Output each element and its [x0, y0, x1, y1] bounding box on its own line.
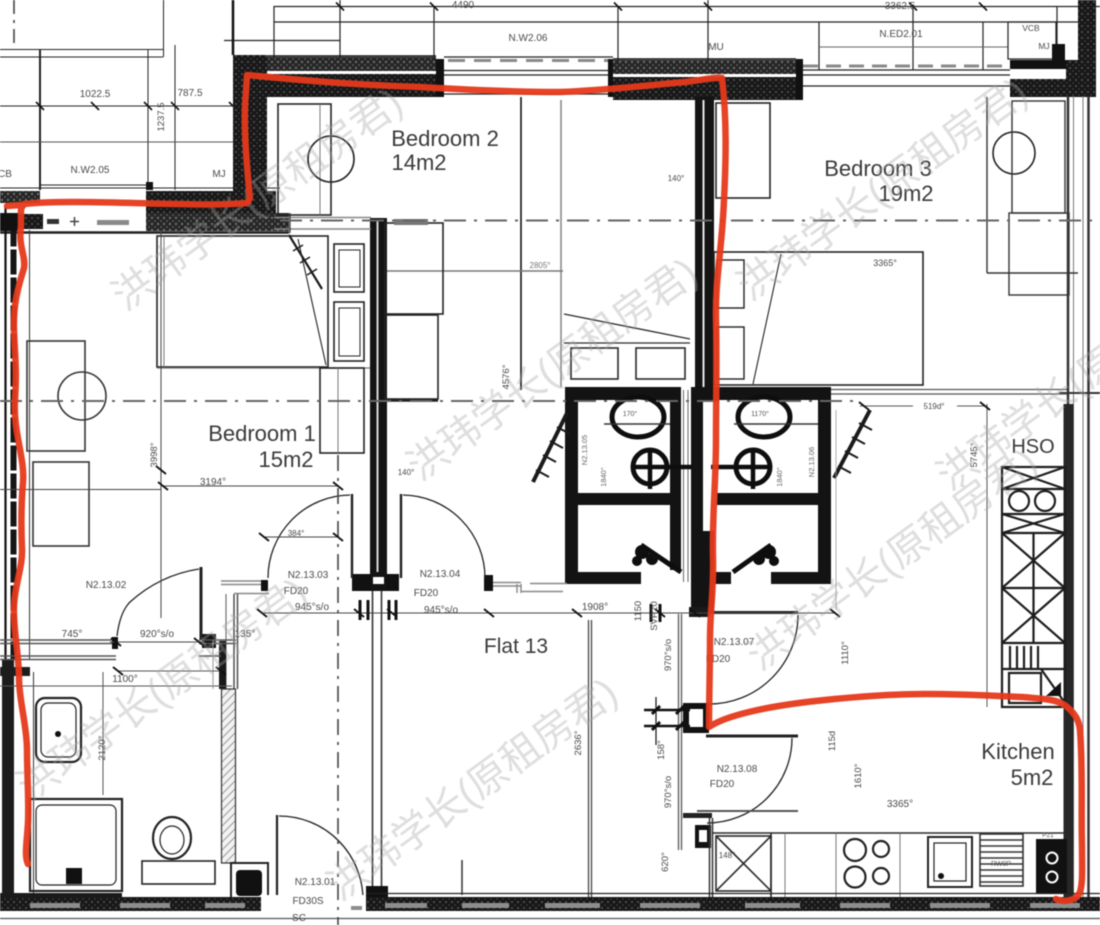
svg-text:N2.13.05: N2.13.05	[580, 435, 589, 465]
svg-text:N2.13.08: N2.13.08	[717, 764, 758, 775]
svg-text:N2.13.04: N2.13.04	[420, 569, 461, 580]
svg-text:970°s/o: 970°s/o	[663, 639, 674, 671]
svg-text:787.5: 787.5	[177, 88, 202, 99]
svg-text:970°s/o: 970°s/o	[663, 776, 674, 808]
svg-text:MU: MU	[708, 42, 724, 53]
svg-text:945°s/o: 945°s/o	[424, 605, 458, 616]
svg-text:3365°: 3365°	[887, 799, 913, 810]
svg-text:140°: 140°	[668, 174, 685, 183]
svg-text:3998°: 3998°	[149, 442, 160, 467]
svg-text:N.W2.06: N.W2.06	[509, 33, 548, 44]
svg-text:P21: P21	[1042, 832, 1054, 839]
svg-text:620°: 620°	[660, 852, 671, 872]
svg-text:3365°: 3365°	[873, 258, 897, 268]
svg-text:158°: 158°	[656, 740, 667, 760]
svg-text:2805°: 2805°	[530, 261, 551, 270]
svg-text:1170°: 1170°	[751, 410, 769, 418]
svg-text:FD20: FD20	[710, 779, 735, 790]
svg-text:1840°: 1840°	[775, 467, 784, 487]
svg-text:384°: 384°	[288, 529, 305, 538]
svg-text:14m2: 14m2	[391, 150, 446, 175]
svg-text:519d°: 519d°	[924, 402, 945, 411]
svg-text:3194°: 3194°	[200, 477, 226, 488]
svg-text:N.W2.05: N.W2.05	[71, 165, 110, 176]
svg-text:170°: 170°	[623, 410, 638, 418]
svg-text:15m2: 15m2	[258, 447, 313, 472]
svg-text:148°: 148°	[719, 851, 736, 860]
svg-text:745°: 745°	[62, 629, 83, 640]
svg-text:1150: 1150	[633, 601, 644, 621]
svg-text:1110°: 1110°	[840, 641, 851, 665]
svg-text:FD30S: FD30S	[292, 896, 323, 907]
svg-text:3362.5: 3362.5	[885, 1, 916, 12]
svg-text:5m2: 5m2	[1011, 765, 1054, 790]
svg-text:N2.13.02: N2.13.02	[86, 580, 127, 591]
svg-text:N.ED2.01: N.ED2.01	[879, 29, 923, 40]
svg-text:115d: 115d	[827, 731, 838, 751]
svg-text:FD20: FD20	[414, 588, 439, 599]
svg-text:VCB: VCB	[1022, 23, 1040, 33]
svg-text:SVP20: SVP20	[649, 601, 660, 631]
svg-text:920°s/o: 920°s/o	[140, 629, 174, 640]
svg-text:1908°: 1908°	[582, 602, 608, 613]
svg-text:1022.5: 1022.5	[80, 89, 111, 100]
svg-text:MJ: MJ	[1038, 41, 1049, 51]
svg-text:MJ: MJ	[212, 169, 225, 180]
svg-text:Bedroom 1: Bedroom 1	[208, 421, 316, 446]
svg-text:4490: 4490	[452, 0, 475, 11]
svg-text:RW0P: RW0P	[991, 861, 1011, 868]
svg-text:N2.13.06: N2.13.06	[807, 447, 816, 477]
svg-text:1610°: 1610°	[853, 763, 864, 788]
svg-text:1840°: 1840°	[599, 467, 608, 487]
svg-text:Bedroom 2: Bedroom 2	[391, 126, 499, 151]
svg-text:Flat 13: Flat 13	[484, 635, 548, 658]
svg-text:1237.5: 1237.5	[156, 102, 167, 131]
svg-text:SC: SC	[292, 913, 306, 924]
svg-text:Kitchen: Kitchen	[981, 739, 1054, 764]
svg-text:CB: CB	[0, 169, 12, 180]
